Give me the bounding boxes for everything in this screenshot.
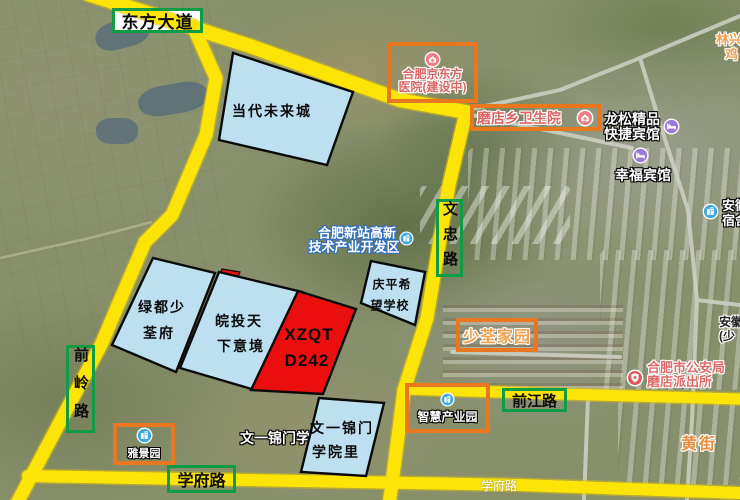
parcel-label: 下意境 bbox=[217, 336, 265, 356]
parcel-label: 荃府 bbox=[143, 323, 175, 343]
linxing-line2: 鸡 bbox=[716, 47, 740, 62]
parcel-label: 当代未来城 bbox=[232, 101, 312, 121]
parcel-label: 学院里 bbox=[312, 442, 360, 462]
hospital-icon[interactable] bbox=[576, 109, 594, 127]
map-canvas[interactable]: 文一锦门学院 学府路 当代未来城 绿都少 荃府 皖投天 下意境 庆平希 望学校 … bbox=[0, 0, 740, 500]
parcel-label-d242: D242 bbox=[285, 351, 330, 371]
police-badge-icon[interactable] bbox=[626, 369, 644, 387]
poi-xingfu-hotel: 幸福宾馆 bbox=[615, 165, 671, 185]
poi-longsong-hotel: 龙松精品 快捷宾馆 bbox=[604, 112, 660, 142]
police-line2: 磨店派出所 bbox=[647, 375, 725, 389]
poi-box-modian-clinic[interactable]: 磨店乡卫生院 bbox=[470, 104, 601, 131]
poi-box-yajing-garden[interactable]: 雅景园 bbox=[113, 423, 175, 465]
poi-linxing: 林兴 鸡 bbox=[716, 32, 740, 62]
building-icon[interactable] bbox=[440, 392, 455, 407]
poi-box-smart-park[interactable]: 智慧产业园 bbox=[405, 383, 490, 433]
parcel-label: 望学校 bbox=[370, 297, 409, 314]
modian-clinic-label: 磨店乡卫生院 bbox=[477, 108, 561, 128]
building-icon[interactable] bbox=[399, 231, 414, 246]
parcel-label-xzqt: XZQT bbox=[284, 325, 333, 345]
poi-xinzhan-zone-line2: 技术产业开发区 bbox=[308, 237, 399, 256]
parcel-qingping-hope-school[interactable] bbox=[361, 261, 425, 325]
road-label-wenzhong[interactable]: 文忠路 bbox=[436, 199, 463, 277]
anhui-shaoquan-line2: (少 bbox=[719, 329, 740, 343]
anhui-shaoquan-line1: 安徽 bbox=[719, 315, 740, 329]
smart-park-label: 智慧产业园 bbox=[417, 408, 477, 425]
longsong-line1: 龙松精品 bbox=[604, 112, 660, 127]
police-line1: 合肥市公安局 bbox=[647, 361, 725, 375]
building-icon[interactable] bbox=[136, 427, 153, 444]
building-icon[interactable] bbox=[702, 203, 719, 220]
poi-police-station: 合肥市公安局 磨店派出所 bbox=[647, 361, 725, 389]
bjd-hospital-label-line2: 医院(建设中) bbox=[399, 81, 467, 94]
anhui-dorm-line1: 安徽 bbox=[722, 198, 740, 213]
hotel-icon[interactable] bbox=[663, 118, 680, 135]
poi-anhui-dorm: 安徽 宿舍 bbox=[722, 198, 740, 228]
parcel-label: 文一锦门 bbox=[310, 418, 374, 438]
road-label-dongfang-avenue[interactable]: 东方大道 bbox=[112, 8, 203, 33]
poi-box-shaoquan-home[interactable]: 少荃家园 bbox=[456, 318, 538, 352]
road-label-qianjiang[interactable]: 前江路 bbox=[502, 388, 567, 412]
poi-anhui-shaoquan: 安徽 (少 bbox=[719, 315, 740, 343]
parcel-label: 皖投天 bbox=[215, 311, 263, 331]
linxing-line1: 林兴 bbox=[716, 32, 740, 47]
road-label-xuefu[interactable]: 学府路 bbox=[167, 465, 236, 493]
hospital-icon[interactable] bbox=[424, 51, 441, 68]
parcel-label: 绿都少 bbox=[138, 297, 186, 317]
longsong-line2: 快捷宾馆 bbox=[604, 127, 660, 142]
anhui-dorm-line2: 宿舍 bbox=[722, 213, 740, 228]
hotel-icon[interactable] bbox=[632, 147, 649, 164]
parcel-label: 庆平希 bbox=[372, 276, 411, 293]
poi-huang-street: 黄街 bbox=[681, 430, 717, 454]
poi-box-bjd-hospital[interactable]: 合肥京东方 医院(建设中) bbox=[387, 42, 478, 103]
road-label-qianling[interactable]: 前岭路 bbox=[66, 345, 95, 433]
shaoquan-home-label: 少荃家园 bbox=[463, 323, 531, 347]
yajing-garden-label: 雅景园 bbox=[128, 445, 161, 461]
